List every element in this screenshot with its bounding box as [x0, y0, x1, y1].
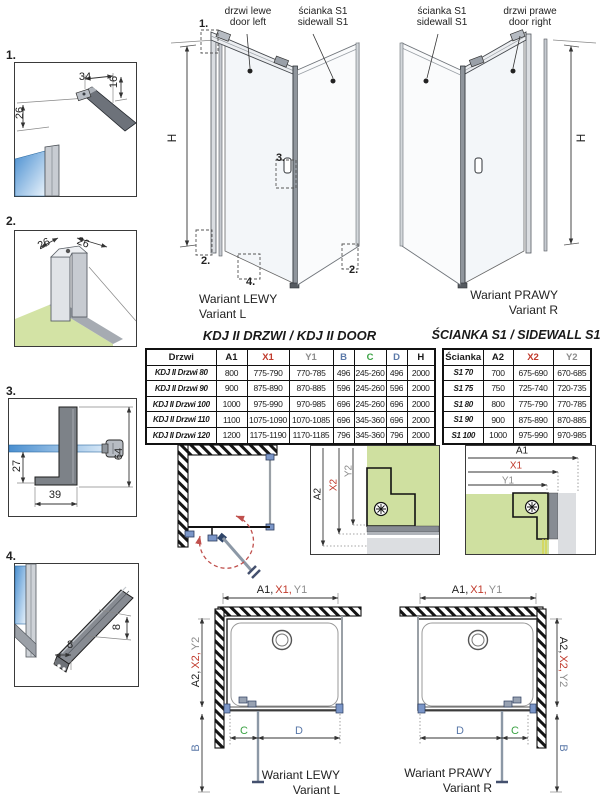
detail-4-dim-8-bottom: 8: [67, 639, 73, 651]
table-cell: 1070-1085: [289, 412, 333, 428]
row-label: S1 100: [443, 427, 483, 443]
bracket: [336, 704, 343, 713]
section-y2-label: Y2: [344, 465, 355, 477]
table-cell: 875-890: [247, 381, 289, 397]
detail-1-dim-34: 34: [79, 71, 91, 83]
hinge-fitting: [248, 701, 256, 707]
table-cell: 750: [483, 381, 513, 397]
table-cell: 900: [483, 412, 513, 428]
dim-a1: A1,: [452, 584, 469, 596]
door-section-drawing: [466, 446, 595, 554]
row-label: KDJ II Drzwi 80: [146, 365, 216, 381]
door-swing-plan: [165, 441, 315, 589]
section-a2-label: A2: [313, 488, 324, 500]
table-cell: 700: [483, 365, 513, 381]
detail-1-label: 1.: [6, 48, 16, 62]
column-header: Y2: [553, 349, 591, 365]
plan-left-caption: Wariant LEWY Variant L: [240, 768, 340, 798]
table-cell: 2000: [407, 381, 435, 397]
table-cell: 675-690: [513, 365, 553, 381]
section-y1-label: Y1: [502, 476, 514, 487]
perspective-right-drawing: [398, 6, 607, 318]
door-handle: [475, 158, 482, 173]
column-header: Ścianka: [443, 349, 483, 365]
table-cell: 245-260: [354, 365, 386, 381]
table-cell: 696: [333, 396, 354, 412]
detail-3-dim-27: 27: [11, 460, 23, 472]
table-cell: 670-685: [553, 365, 591, 381]
detail-2-label: 2.: [6, 214, 16, 228]
detail-3-label: 3.: [6, 384, 16, 398]
detail-4-label: 4.: [6, 549, 16, 563]
detail-3-dim-39: 39: [49, 489, 61, 501]
row-label: KDJ II Drzwi 110: [146, 412, 216, 428]
table-row: KDJ II Drzwi 1001000975-990970-985696245…: [146, 396, 435, 412]
column-header: X2: [513, 349, 553, 365]
glass-panel: [15, 151, 45, 196]
wall-profile-front: [51, 257, 70, 321]
column-header: Y1: [289, 349, 333, 365]
table-cell: 800: [216, 365, 247, 381]
wall-profile-back: [72, 253, 87, 317]
profile-band: [367, 526, 439, 532]
door-left-label: drzwi lewe door left: [220, 6, 276, 28]
variant-right-caption: Wariant PRAWY Variant R: [470, 288, 558, 318]
table-cell: 345-360: [354, 427, 386, 443]
sidewall-section-box: [310, 445, 440, 555]
header-row: ŚciankaA2X2Y2: [443, 349, 591, 365]
plan-right-b-dim: B: [557, 744, 569, 751]
table-cell: 345-360: [354, 412, 386, 428]
table-cell: 245-260: [354, 396, 386, 412]
column-header: A1: [216, 349, 247, 365]
wall-right: [537, 609, 546, 748]
plan-right-side-dim: A2,X2,Y2: [557, 637, 569, 690]
table-cell: 870-885: [553, 412, 591, 428]
dim-y2: Y2: [557, 674, 569, 687]
table-row: S1 80800775-790770-785: [443, 396, 591, 412]
height-dim-left: H: [165, 134, 179, 143]
sidewall-glass: [402, 43, 461, 285]
column-header: H: [407, 349, 435, 365]
table-cell: 1000: [483, 427, 513, 443]
table-row: S1 1001000975-990970-985: [443, 427, 591, 443]
glass-band: [367, 538, 439, 554]
table-cell: 696: [333, 412, 354, 428]
plan-left-b-dim: B: [190, 744, 202, 751]
bracket: [208, 535, 217, 541]
column-header: C: [354, 349, 386, 365]
table-cell: 975-990: [247, 396, 289, 412]
height-dim-right: H: [574, 134, 588, 143]
callout-4: 4.: [246, 276, 255, 288]
sidewall-table-title: ŚCIANKA S1 / SIDEWALL S1: [430, 328, 602, 342]
corner-post: [461, 66, 466, 285]
table-cell: 770-785: [289, 365, 333, 381]
hinge-fitting: [239, 697, 247, 703]
table-cell: 796: [333, 427, 354, 443]
callout-2-right: 2.: [349, 264, 358, 276]
wall-profile: [356, 43, 359, 246]
corner-post: [293, 66, 298, 285]
detail-1-dim-26: 26: [14, 107, 26, 119]
table-row: S1 75750725-740720-735: [443, 381, 591, 397]
table-cell: 496: [386, 365, 407, 381]
callout-1: 1.: [199, 18, 208, 30]
hinge-fitting: [513, 697, 521, 703]
table-cell: 596: [333, 381, 354, 397]
row-label: S1 80: [443, 396, 483, 412]
callout-box-2-left: [196, 230, 212, 255]
section-x2-label: X2: [329, 479, 340, 491]
wall-profile: [400, 43, 403, 246]
table-row: KDJ II Drzwi 11011001075-10901070-108569…: [146, 412, 435, 428]
leader-dot: [511, 69, 516, 74]
leader-dot: [424, 79, 429, 84]
dim-x2: X2,: [557, 655, 569, 672]
row-label: KDJ II Drzwi 100: [146, 396, 216, 412]
column-header: Drzwi: [146, 349, 216, 365]
dim-y1: Y1: [294, 584, 307, 596]
column-header: B: [333, 349, 354, 365]
table-cell: 2000: [407, 427, 435, 443]
sidewall-label-right: ścianka S1 sidewall S1: [416, 6, 468, 28]
plan-right-caption: Wariant PRAWY Variant R: [392, 766, 492, 796]
open-door: [223, 538, 251, 570]
table-row: KDJ II Drzwi 80800775-790770-785496245-2…: [146, 365, 435, 381]
table-cell: 2000: [407, 396, 435, 412]
dim-a2: A2,: [557, 637, 569, 654]
door-table: DrzwiA1X1Y1BCDHKDJ II Drzwi 80800775-790…: [145, 348, 436, 445]
plan-left-side-dim: A2,X2,Y2: [190, 635, 202, 688]
hinge-profile: [211, 34, 216, 253]
wall-top: [400, 607, 543, 616]
table-cell: 496: [333, 365, 354, 381]
wall-left: [215, 609, 224, 748]
table-cell: 1075-1090: [247, 412, 289, 428]
plan-right-d-dim: D: [456, 725, 464, 737]
table-row: KDJ II Drzwi 90900875-890870-885596245-2…: [146, 381, 435, 397]
detail-2-box: [14, 230, 137, 347]
sidewall-section-drawing: [311, 446, 439, 554]
table-cell: 875-890: [513, 412, 553, 428]
table-cell: 725-740: [513, 381, 553, 397]
door-right-label: drzwi prawe door right: [503, 6, 557, 28]
table-cell: 245-260: [354, 381, 386, 397]
hinge-fitting: [504, 701, 512, 707]
detail-1-dim-16: 16: [108, 76, 120, 88]
header-row: DrzwiA1X1Y1BCDH: [146, 349, 435, 365]
table-cell: 800: [483, 396, 513, 412]
wall-top: [178, 445, 277, 455]
table-row: S1 70700675-690670-685: [443, 365, 591, 381]
table-cell: 696: [386, 396, 407, 412]
plan-right-c-dim: C: [511, 725, 519, 737]
shower-tray: [418, 619, 537, 710]
table-cell: 775-790: [247, 365, 289, 381]
spec-sheet: { "colors": { "red": "#c0392b", "blue": …: [0, 0, 607, 800]
table-cell: 2000: [407, 412, 435, 428]
bracket: [224, 704, 230, 713]
detail-2-drawing: [15, 231, 136, 346]
sidewall-table: ŚciankaA2X2Y2S1 70700675-690670-685S1 75…: [442, 348, 592, 445]
bracket: [266, 454, 274, 460]
profile-strip: [549, 493, 558, 539]
screw: [66, 249, 70, 253]
table-cell: 970-985: [289, 396, 333, 412]
dim-x2: X2,: [190, 652, 202, 669]
plan-left-c-dim: C: [240, 725, 248, 737]
row-label: S1 90: [443, 412, 483, 428]
dim-a1: A1,: [257, 584, 274, 596]
callout-3: 3.: [276, 152, 285, 164]
row-label: S1 75: [443, 381, 483, 397]
glass-strip: [558, 493, 576, 554]
column-header: A2: [483, 349, 513, 365]
table-cell: 775-790: [513, 396, 553, 412]
table-cell: 970-985: [553, 427, 591, 443]
table-cell: 1100: [216, 412, 247, 428]
sidewall-glass: [298, 43, 360, 285]
detail-4-dim-8-right: 8: [111, 624, 123, 630]
dim-a2: A2,: [190, 671, 202, 688]
door-section-box: [465, 445, 596, 555]
callout-2-left: 2.: [201, 255, 210, 267]
variant-left-caption: Wariant LEWY Variant L: [199, 292, 277, 322]
detail-3-dim-64: 64: [113, 448, 125, 460]
table-cell: 1000: [216, 396, 247, 412]
table-cell: 796: [386, 427, 407, 443]
column-header: X1: [247, 349, 289, 365]
dim-y1: Y1: [489, 584, 502, 596]
sidewall-label-left: ścianka S1 sidewall S1: [297, 6, 349, 28]
plan-right-top-dim: A1,X1,Y1: [452, 584, 505, 596]
table-cell: 870-885: [289, 381, 333, 397]
bracket: [185, 531, 194, 537]
row-label: KDJ II Drzwi 90: [146, 381, 216, 397]
dim-x1: X1,: [470, 584, 487, 596]
door-table-title: KDJ II DRZWI / KDJ II DOOR: [145, 328, 434, 343]
row-label: S1 70: [443, 365, 483, 381]
glass-panel: [15, 566, 26, 624]
plan-left-d-dim: D: [295, 725, 303, 737]
bracket: [530, 704, 536, 713]
dim-x1: X1,: [275, 584, 292, 596]
table-cell: 770-785: [553, 396, 591, 412]
table-cell: 696: [386, 412, 407, 428]
wall-top: [218, 607, 361, 616]
dim-y2: Y2: [190, 637, 202, 650]
section-x1-label: X1: [510, 461, 522, 472]
bracket: [418, 704, 425, 713]
plan-left-top-dim: A1,X1,Y1: [257, 584, 310, 596]
hinge-profile: [526, 34, 531, 253]
leader-dot: [248, 69, 253, 74]
table-cell: 2000: [407, 365, 435, 381]
leader-dot: [331, 79, 336, 84]
table-row: S1 90900875-890870-885: [443, 412, 591, 428]
column-header: D: [386, 349, 407, 365]
table-cell: 900: [216, 381, 247, 397]
section-a1-label: A1: [516, 446, 528, 457]
table-cell: 975-990: [513, 427, 553, 443]
door-glass: [465, 40, 524, 283]
table-cell: 720-735: [553, 381, 591, 397]
shower-tray: [227, 619, 342, 710]
table-cell: 596: [386, 381, 407, 397]
